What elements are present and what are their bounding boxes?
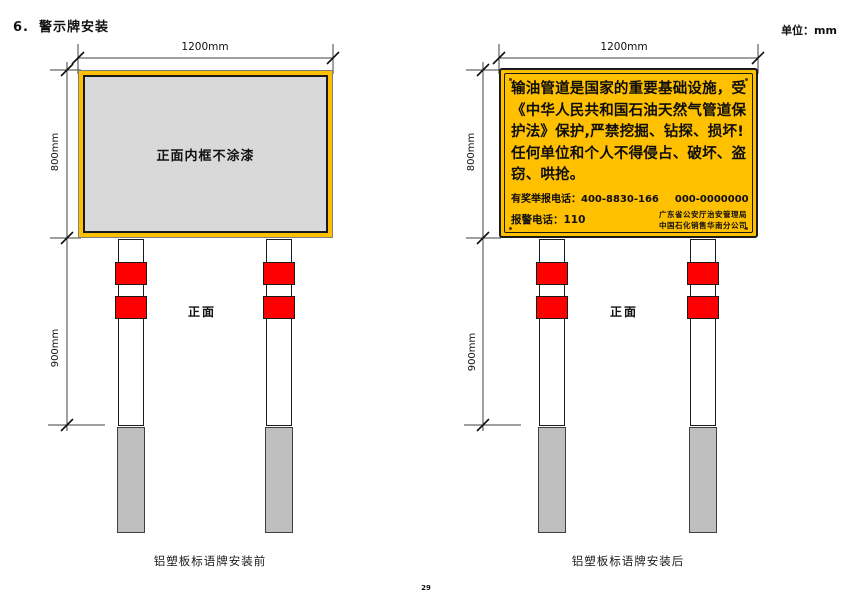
dim-post-right: 900mm [467, 322, 479, 382]
buried-footing [265, 427, 293, 533]
dim-width-left: 1200mm [155, 41, 255, 53]
document-page: 6.警示牌安装 单位：mm 1200mm 1200mm 800mm 900mm … [0, 0, 852, 609]
org-line: 中国石化销售华南分公司 [659, 220, 747, 231]
warning-sign-board: 输油管道是国家的重要基础设施，受 《中华人民共和国石油天然气管道保 护法》保护,… [499, 68, 758, 238]
sign-text-line: 窃、哄抢。 [511, 165, 747, 187]
red-band [687, 262, 719, 285]
hotline-alt-number: 000-0000000 [675, 194, 749, 205]
heading-title: 警示牌安装 [39, 20, 109, 35]
sign-text-block: 输油管道是国家的重要基础设施，受 《中华人民共和国石油天然气管道保 护法》保护,… [511, 79, 747, 231]
front-label-left: 正面 [180, 303, 224, 320]
caption-after: 铝塑板标语牌安装后 [518, 553, 738, 569]
red-band [536, 262, 568, 285]
sign-text-line: 《中华人民共和国石油天然气管道保 [511, 101, 747, 123]
blank-sign-board: 正面内框不涂漆 [78, 70, 333, 238]
buried-footing [689, 427, 717, 533]
panel-note: 正面内框不涂漆 [156, 145, 254, 164]
heading-number: 6. [13, 20, 29, 35]
dim-height-right: 800mm [466, 122, 478, 182]
dim-height-left: 800mm [50, 122, 62, 182]
page-heading: 6.警示牌安装 [13, 16, 109, 35]
red-band [115, 262, 147, 285]
reward-hotline: 有奖举报电话：400-8830-166000-0000000 [511, 190, 747, 205]
front-label-right: 正面 [602, 303, 646, 320]
hotline-text: 有奖举报电话：400-8830-166 [511, 194, 659, 205]
sign-text-line: 输油管道是国家的重要基础设施，受 [511, 79, 747, 101]
red-band [536, 296, 568, 319]
sign-text-line: 任何单位和个人不得侵占、破坏、盗 [511, 144, 747, 166]
dim-post-left: 900mm [50, 318, 62, 378]
red-band [115, 296, 147, 319]
org-line: 广东省公安厅治安管理局 [659, 209, 747, 220]
page-number: 29 [0, 584, 852, 592]
buried-footing [117, 427, 145, 533]
sign-footer-row: 报警电话：110 广东省公安厅治安管理局 中国石化销售华南分公司 [511, 209, 747, 231]
buried-footing [538, 427, 566, 533]
dim-width-right: 1200mm [574, 41, 674, 53]
caption-before: 铝塑板标语牌安装前 [100, 553, 320, 569]
issuing-organizations: 广东省公安厅治安管理局 中国石化销售华南分公司 [659, 209, 747, 231]
sign-inner-panel: 正面内框不涂漆 [83, 75, 328, 233]
red-band [687, 296, 719, 319]
red-band [263, 262, 295, 285]
units-label: 单位：mm [781, 22, 837, 38]
police-phone: 报警电话：110 [511, 212, 585, 227]
sign-text-line: 护法》保护,严禁挖掘、钻探、损坏! [511, 122, 747, 144]
red-band [263, 296, 295, 319]
